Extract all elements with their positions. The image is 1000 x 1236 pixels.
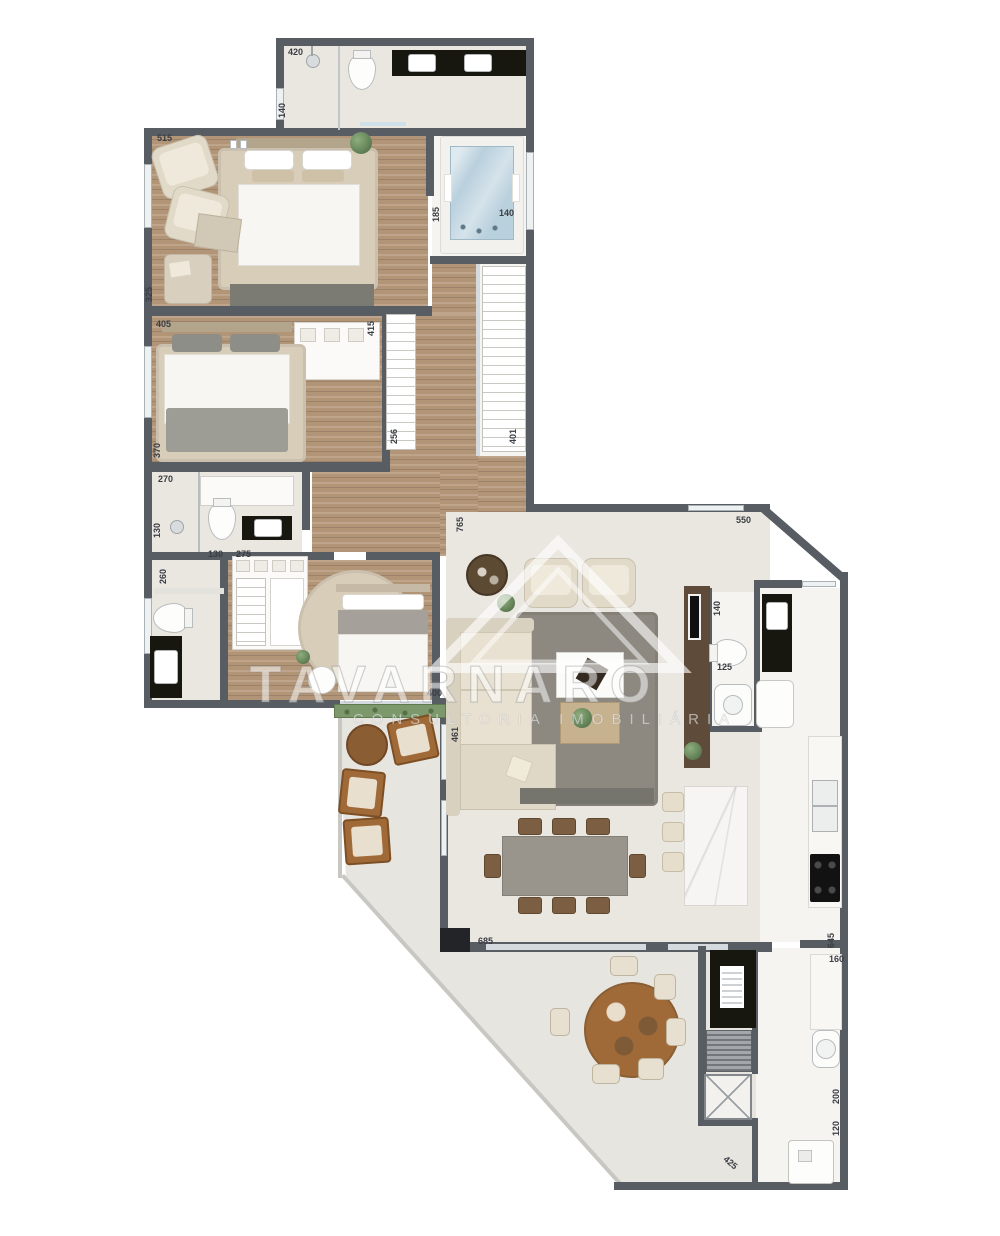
dim-label: 200 [831, 1089, 841, 1104]
bedroom2-bed-blanket [166, 408, 288, 452]
dim-label: 125 [717, 662, 732, 672]
spa-step-right [512, 174, 520, 202]
bathroom2-shower-head [170, 520, 184, 534]
bedroom3-closet-drawers [236, 578, 266, 646]
living-sideboard [520, 788, 654, 804]
private-elevator [704, 1074, 752, 1120]
coffee-table-plant [572, 708, 592, 728]
dining-chair-right [629, 854, 646, 878]
bedroom2-bed-headboard [162, 322, 292, 332]
wall-bedroom2-bathroom2 [144, 462, 390, 472]
bathroom3-sink [154, 650, 178, 684]
wall-diagonal-northeast [759, 504, 847, 582]
bathroom2-shower-glass [198, 472, 200, 552]
dim-label: 515 [157, 133, 172, 143]
sofa-arm-top [446, 618, 534, 632]
wall-kitchen-top [754, 580, 802, 588]
dim-label: 140 [499, 208, 514, 218]
dim-label: 325 [144, 287, 154, 302]
terrace-wood-chair-3 [342, 816, 391, 865]
terrace-wood-chair-1 [386, 714, 440, 767]
dim-label: 400 [427, 688, 442, 698]
wall-bathroom-top [276, 38, 534, 46]
bar-stool-3 [662, 852, 684, 872]
dim-label: 130 [152, 523, 162, 538]
floor-corridor-south [478, 456, 528, 512]
bathroom3-toilet [153, 603, 189, 633]
sofa-back [446, 618, 460, 816]
dim-label: 256 [389, 429, 399, 444]
bedroom3-side-table [308, 666, 336, 694]
shower-stem [311, 46, 313, 56]
bedroom2-bed-pillow-left [172, 334, 222, 352]
dim-label: 685 [478, 936, 493, 946]
wall-bedroom3-top-b [366, 552, 440, 560]
bedroom3-plant [296, 650, 310, 664]
shower-partition [338, 46, 340, 130]
floor-hall [312, 472, 440, 552]
master-bed-cushion-left [252, 170, 294, 182]
service-sink [812, 1030, 840, 1068]
terrace-round-side-table [346, 724, 388, 766]
dim-label: 461 [450, 727, 460, 742]
wall-bathroom-bottom [282, 128, 528, 136]
dim-label: 645 [826, 933, 836, 948]
dining-chair-left [484, 854, 501, 878]
bedroom2-closet-cushion-2 [324, 328, 340, 342]
kitchen-stove [810, 854, 840, 902]
master-bed-duvet [238, 184, 360, 266]
kitchen-counter-dark-sink [766, 602, 788, 630]
grill-vent-louver [706, 1030, 752, 1072]
bedroom3-bed [336, 584, 430, 694]
kitchen-island [684, 786, 748, 906]
bedroom3-bed-duvet [338, 634, 428, 692]
wall-bathroom2-right [302, 472, 310, 530]
shower-head-icon [306, 54, 320, 68]
dim-label: 405 [156, 319, 171, 329]
dining-chair-top-2 [552, 818, 576, 835]
living-armchair-1 [524, 558, 578, 608]
master-plant [350, 132, 372, 154]
bathroom2-sink [254, 519, 282, 537]
living-plant [497, 594, 515, 612]
dim-label: 140 [712, 601, 722, 616]
dining-chair-bottom-2 [552, 897, 576, 914]
wall-right-mid [526, 230, 534, 512]
dining-chair-top-1 [518, 818, 542, 835]
window-living-top [688, 505, 744, 511]
tv-screen [688, 594, 701, 640]
window-master-left [144, 164, 152, 228]
dim-label: 415 [366, 321, 376, 336]
window-bedroom2-left [144, 346, 152, 418]
dim-label: 420 [288, 47, 303, 57]
master-bed [236, 138, 362, 268]
divider-closet-corridor [476, 264, 480, 456]
kitchen-sink-double [812, 780, 838, 832]
bedroom3-closet-cushion-3 [272, 560, 286, 572]
bathroom3-vanity [154, 588, 224, 594]
living-sofa [446, 618, 558, 816]
dim-label: 120 [831, 1121, 841, 1136]
wall-spa-closet [430, 256, 528, 264]
master-bed-pillow-right [302, 150, 352, 170]
living-side-table-round [466, 554, 508, 596]
wall-service-left-b [752, 1122, 758, 1182]
bedroom2-bed [162, 322, 292, 454]
dim-label: 401 [508, 429, 518, 444]
washer [788, 1140, 834, 1184]
dining-chair-bottom-1 [518, 897, 542, 914]
terrace-wood-chair-2 [338, 768, 387, 818]
bedroom3-bed-headboard [336, 584, 430, 592]
fridge [756, 680, 794, 728]
bedroom3-bed-pillows [342, 594, 424, 610]
spa-step-left [444, 174, 452, 202]
bedroom2-closet-cushion-1 [300, 328, 316, 342]
dim-label: 275 [236, 549, 251, 559]
spa-tub-water [450, 146, 514, 240]
wall-bathroom-left-upper [276, 38, 284, 88]
terrace-chair-top-right [654, 974, 676, 1000]
master-bed-headboard [236, 138, 362, 148]
bathroom-sink-left [408, 54, 436, 72]
master-bench-pillow [169, 261, 191, 278]
bar-stool-2 [662, 822, 684, 842]
terrace-chair-bottom-right [638, 1058, 664, 1080]
master-bed-cushion-right [302, 170, 344, 182]
wall-bottom-west [144, 700, 340, 708]
terrace-chair-top [610, 956, 638, 976]
terrace-chair-bottom [592, 1064, 620, 1084]
dim-label: 270 [158, 474, 173, 484]
living-armchair-2 [582, 558, 636, 608]
terrace-chair-right [666, 1018, 686, 1046]
bedroom2-bed-pillow-right [230, 334, 280, 352]
glass-door-living-bottom-a [486, 944, 646, 950]
window-kitchen-top [802, 581, 836, 587]
terrace-chair-left [550, 1008, 570, 1036]
wall-bedroom3-right [432, 552, 440, 708]
dining-chair-bottom-3 [586, 897, 610, 914]
bar-stool-1 [662, 792, 684, 812]
master-tv-console [230, 284, 374, 306]
floor-plan: 420 140 515 185 140 325 405 415 256 401 … [0, 0, 1000, 1236]
bedroom3-bed-blanket [338, 610, 428, 634]
dim-label: 160 [829, 954, 844, 964]
window-spa-right [526, 152, 534, 230]
dim-label: 765 [455, 517, 465, 532]
bathroom-window-sill [360, 122, 406, 126]
dim-label: 260 [158, 569, 168, 584]
floor-closet-access [432, 262, 478, 316]
dining-table [502, 836, 628, 896]
wall-left-c [144, 418, 152, 598]
barbecue-grill [710, 950, 756, 1028]
washer-door [798, 1150, 812, 1162]
dim-label: 140 [277, 103, 287, 118]
wall-master-spa [426, 134, 434, 196]
dining-chair-top-3 [586, 818, 610, 835]
master-ottoman [194, 213, 242, 253]
bedroom3-closet-cushion-1 [236, 560, 250, 572]
wall-post-black [440, 928, 470, 952]
wall-bedroom3-top-a [312, 552, 334, 560]
bedroom3-closet-cushion-2 [254, 560, 268, 572]
bedroom3-closet-cushion-4 [290, 560, 304, 572]
service-counter [810, 954, 842, 1030]
wall-kitchen-service [800, 940, 848, 948]
lavabo-basin [714, 684, 752, 726]
bathroom-sink-right [464, 54, 492, 72]
wall-bathroom3-bedroom3 [220, 560, 228, 700]
dim-label: 130 [208, 549, 223, 559]
tv-panel-plant [684, 742, 702, 760]
wall-vent-symbol-b [240, 140, 247, 149]
closet-shelves-right [482, 266, 526, 452]
dim-label: 185 [431, 207, 441, 222]
dim-label: 550 [736, 515, 751, 525]
master-bed-pillow-left [244, 150, 294, 170]
dim-label: 370 [152, 443, 162, 458]
bedroom2-closet-cushion-3 [348, 328, 364, 342]
wall-vent-symbol-a [230, 140, 237, 149]
